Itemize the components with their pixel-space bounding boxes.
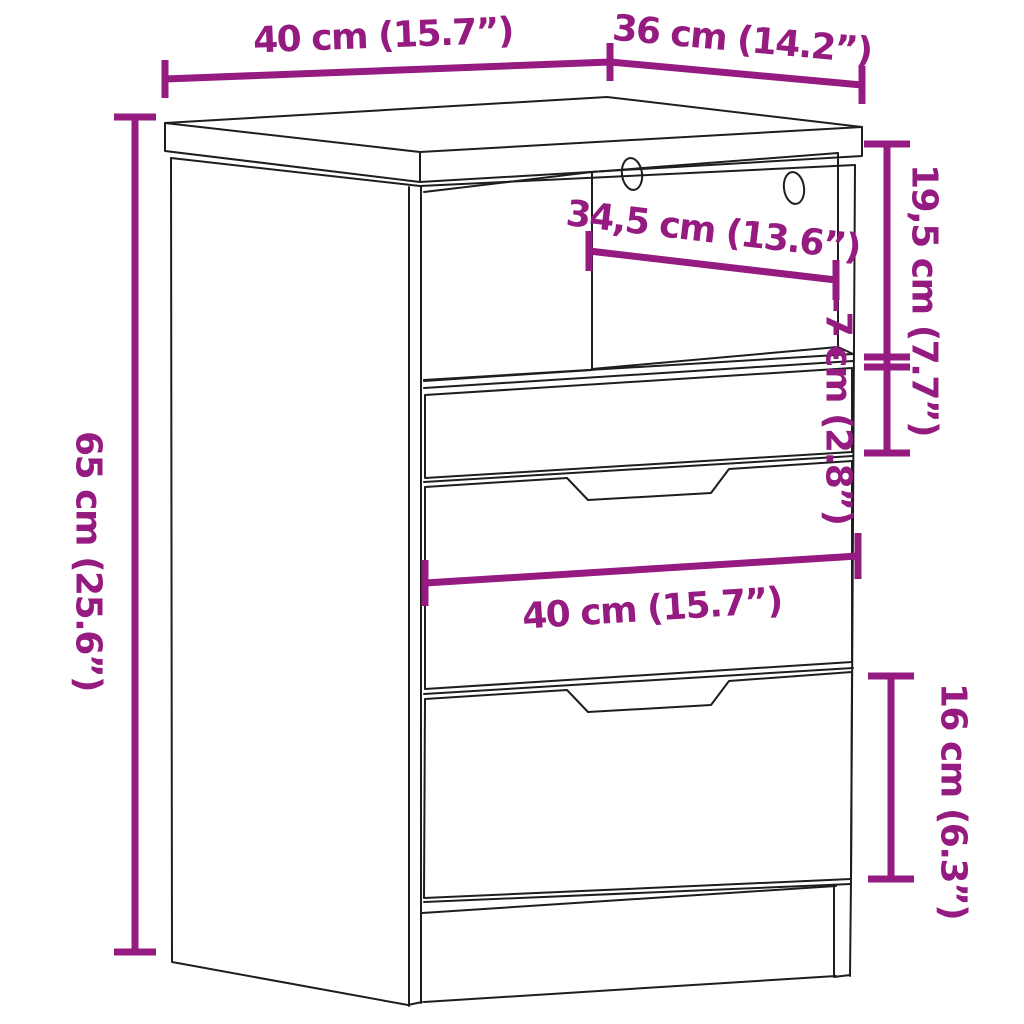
dimension-lines (114, 43, 914, 952)
divider-edge-1 (424, 456, 853, 482)
dim-line-bottom-drawer (868, 676, 914, 879)
back-panel-hole-right (782, 171, 806, 205)
compartment-back-panel-top (592, 153, 838, 172)
back-panel-hole-left (620, 157, 644, 191)
plinth-panel (422, 886, 836, 1002)
corner-post (408, 186, 422, 1006)
drawer-2-front (425, 461, 852, 689)
dimension-label-bottom-drawer-height: 16 cm (6.3”) (933, 683, 974, 919)
dimension-label-compartment-height: 19,5 cm (7.7”) (904, 164, 945, 436)
dim-line-total-height (114, 117, 156, 952)
dimension-label-total-height: 65 cm (25.6”) (68, 431, 109, 691)
dim-line-depth-top (610, 62, 862, 104)
dimension-label-top-drawer-height: 7 cm (2.8”) (818, 312, 859, 525)
divider-edge-2 (424, 668, 853, 694)
diagram-canvas: 40 cm (15.7”) 36 cm (14.2”) 34,5 cm (13.… (0, 0, 1024, 1024)
side-panel (171, 158, 408, 1005)
drawer-3-front (424, 672, 852, 898)
top-slab-front-edges (165, 123, 862, 182)
cabinet-line-drawing (0, 0, 1024, 1024)
